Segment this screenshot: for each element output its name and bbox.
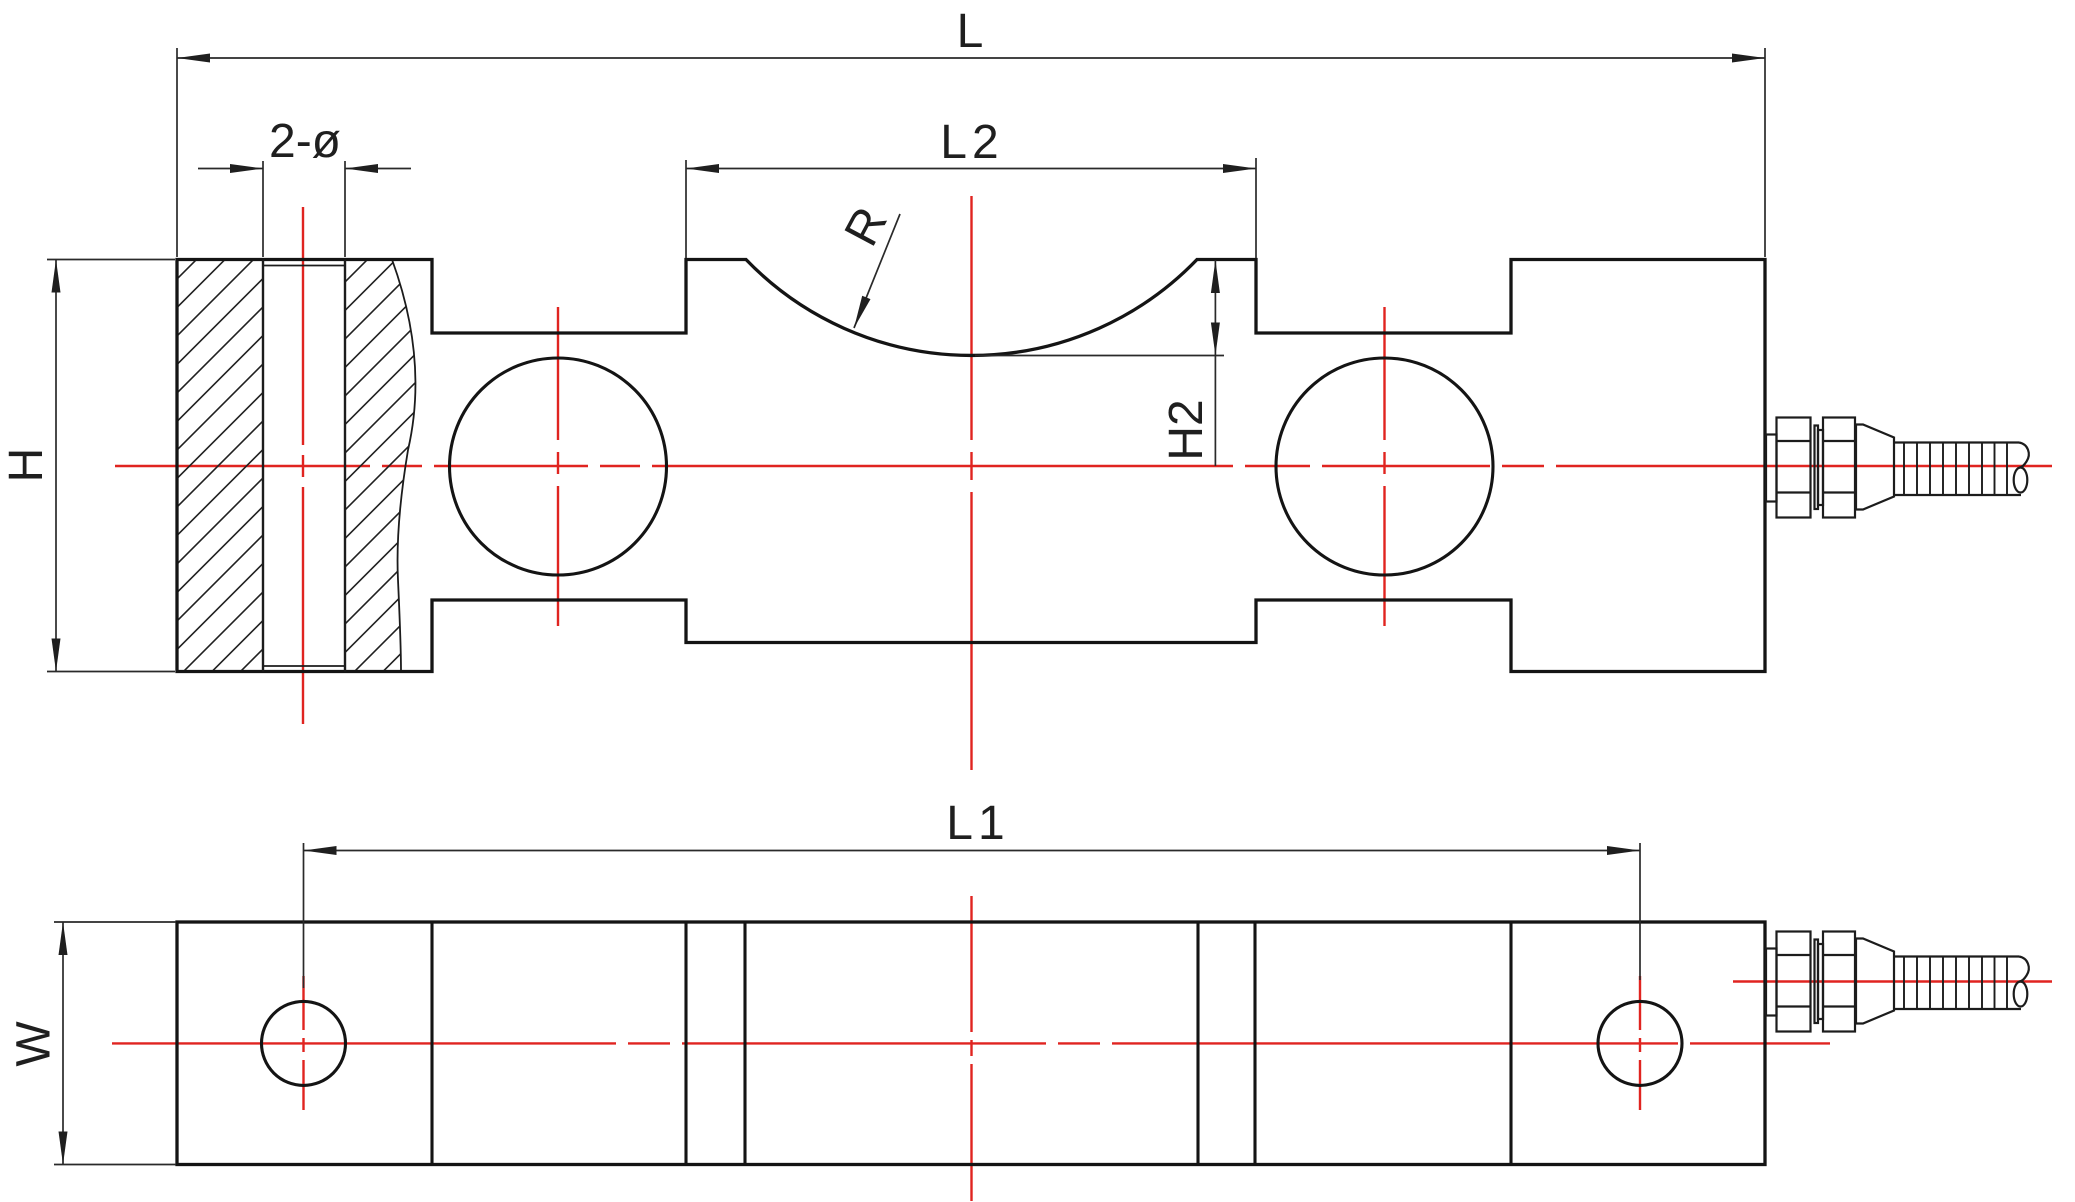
svg-text:H: H: [0, 448, 53, 483]
svg-text:H2: H2: [1160, 399, 1213, 460]
svg-text:L1: L1: [946, 797, 1009, 850]
svg-text:L: L: [957, 5, 984, 58]
svg-text:2-ø: 2-ø: [269, 115, 341, 168]
svg-text:W: W: [8, 1021, 61, 1067]
svg-text:L2: L2: [940, 116, 1003, 169]
